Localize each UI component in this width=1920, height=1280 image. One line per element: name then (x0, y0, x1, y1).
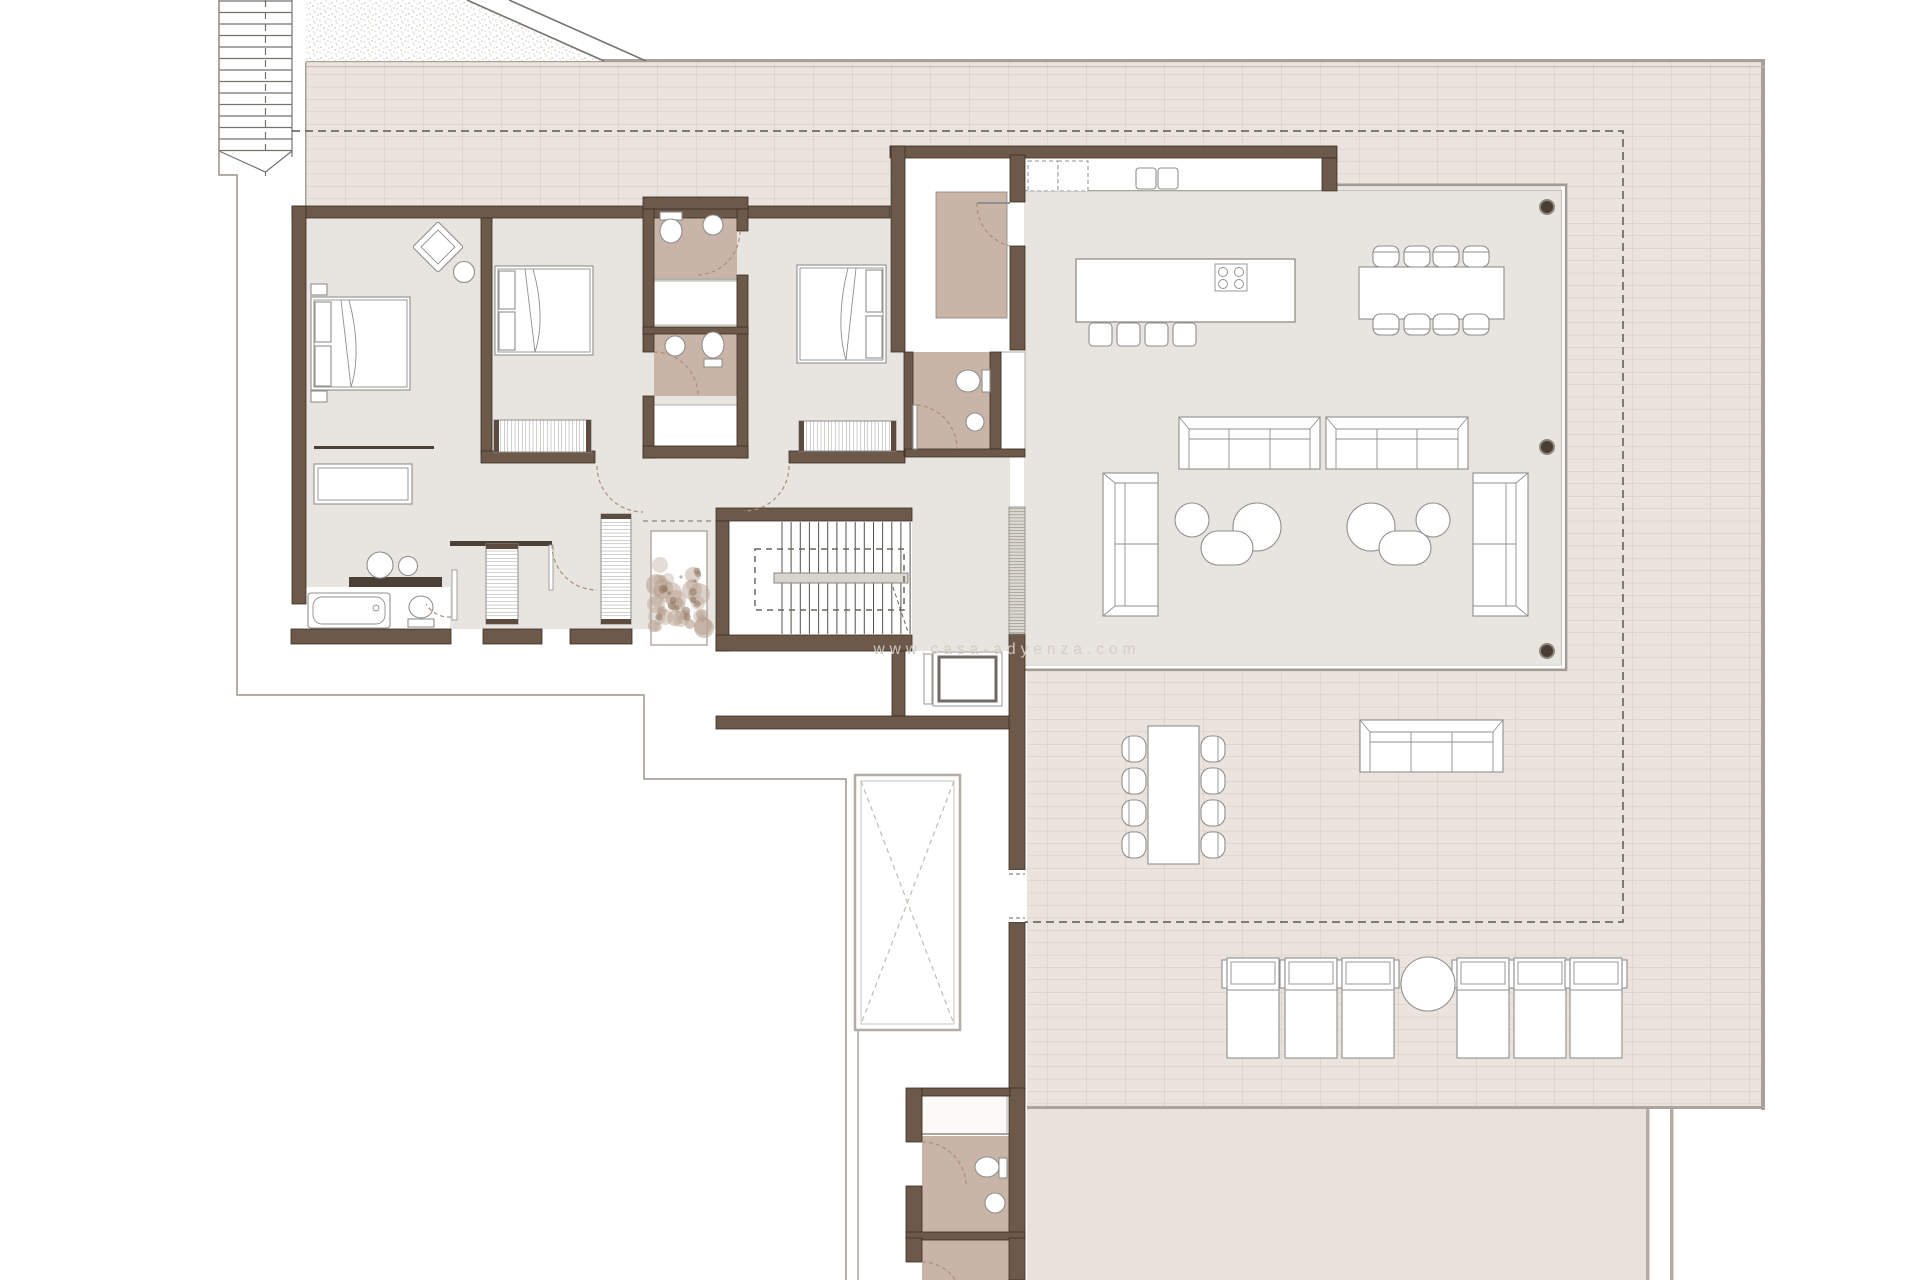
svg-text:www.casa-adyenza.com: www.casa-adyenza.com (872, 641, 1140, 658)
